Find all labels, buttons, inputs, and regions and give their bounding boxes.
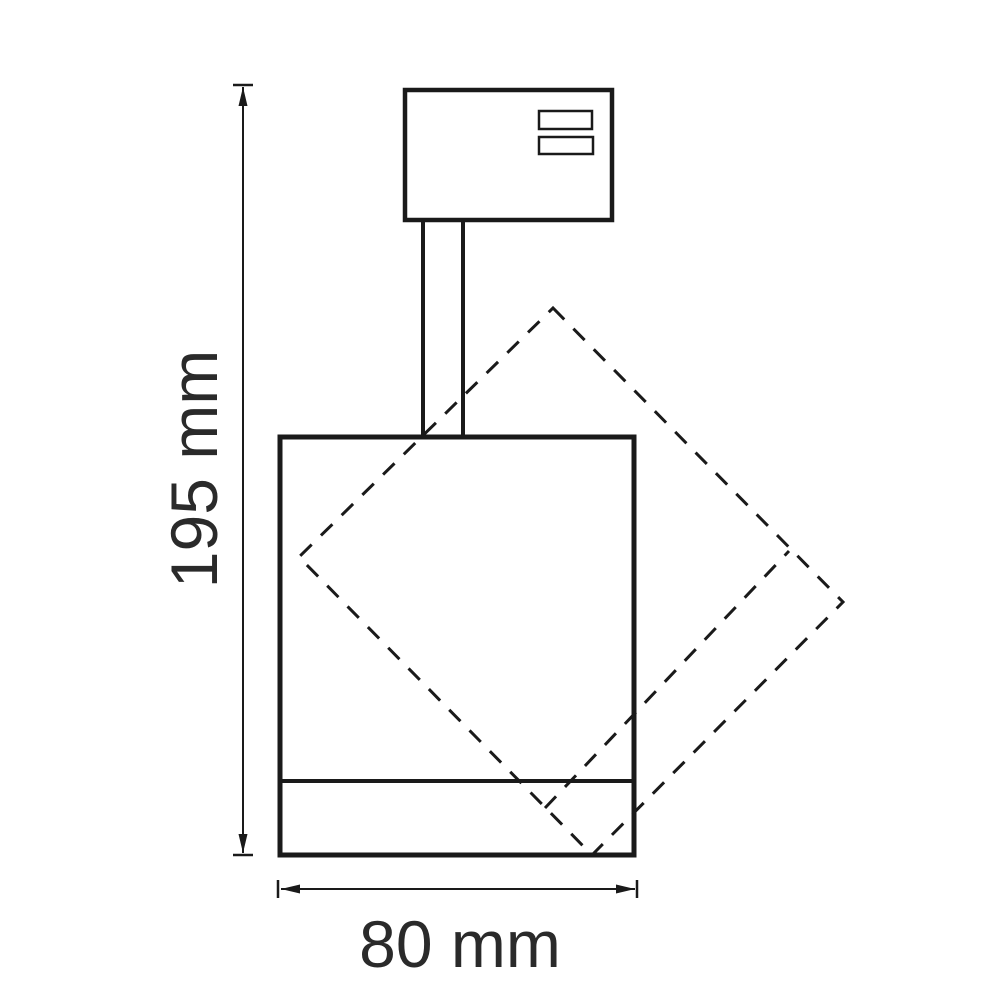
adapter-slot-bottom — [539, 137, 593, 154]
width-dimension-left-arrow-icon — [281, 885, 300, 894]
height-dimension-up-arrow-icon — [239, 87, 248, 106]
track-spotlight-dimension-drawing: 195 mm 80 mm — [0, 0, 1000, 1000]
lamp-body — [278, 437, 636, 855]
width-dimension: 80 mm — [278, 880, 637, 981]
stem — [423, 220, 463, 437]
rotated-rim-line — [545, 551, 789, 808]
rotated-body-outline — [299, 308, 843, 855]
height-dimension: 195 mm — [157, 85, 253, 855]
adapter-slot-top — [539, 111, 592, 129]
lamp-body-outline — [280, 437, 634, 855]
rotated-body-ghost — [299, 308, 843, 855]
height-dimension-label: 195 mm — [157, 350, 231, 588]
width-dimension-label: 80 mm — [359, 907, 561, 981]
dimension-drawing-canvas: 195 mm 80 mm — [0, 0, 1000, 1000]
height-dimension-down-arrow-icon — [239, 834, 248, 853]
width-dimension-right-arrow-icon — [616, 885, 635, 894]
track-adapter — [405, 90, 612, 220]
